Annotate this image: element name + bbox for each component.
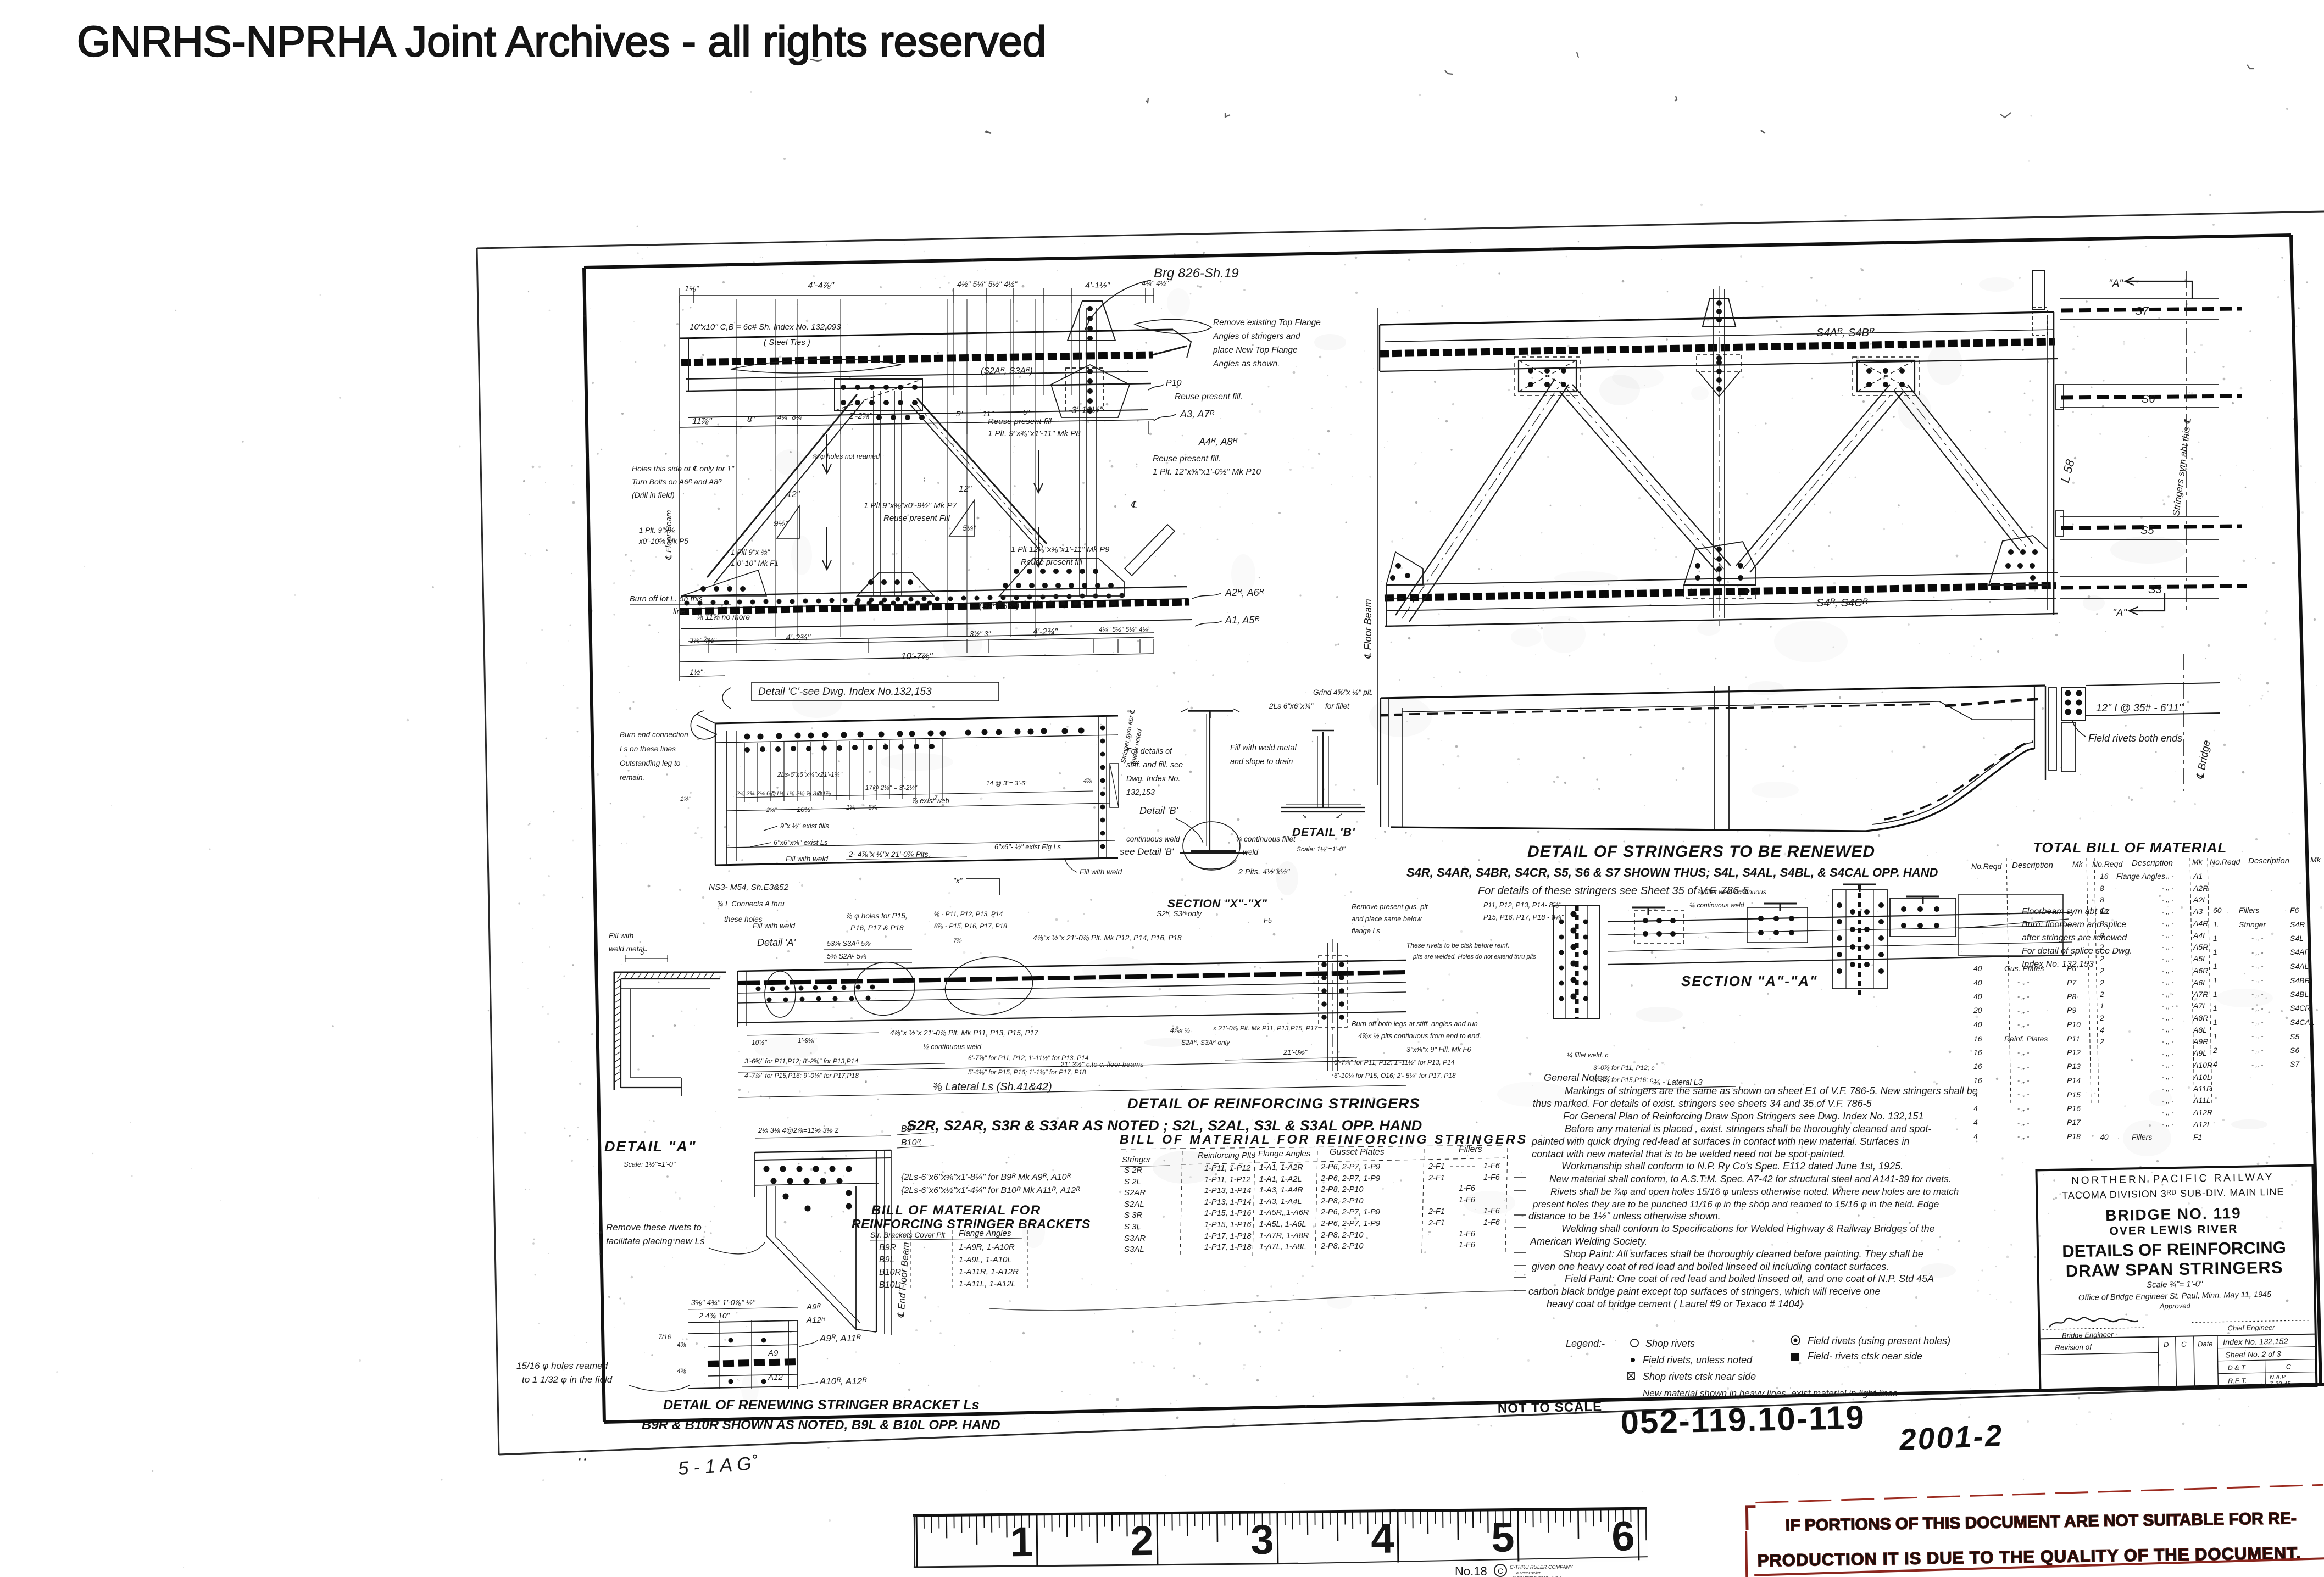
svg-text:- ,, -: - ,, - <box>2162 920 2173 927</box>
svg-text:20: 20 <box>1973 1006 1982 1015</box>
svg-text:3"x⅜"x 9" Fill. Mk F6: 3"x⅜"x 9" Fill. Mk F6 <box>1406 1045 1471 1054</box>
svg-text:- ,, -: - ,, - <box>2017 1021 2029 1028</box>
svg-text:P11: P11 <box>2067 1034 2080 1043</box>
svg-text:6"x6"- ½" exist Flg Ls: 6"x6"- ½" exist Flg Ls <box>994 843 1061 851</box>
svg-text:7-20-45: 7-20-45 <box>2270 1380 2291 1387</box>
svg-text:4: 4 <box>1973 1104 1978 1113</box>
svg-text:A9: A9 <box>768 1348 779 1358</box>
svg-text:40: 40 <box>2100 1133 2109 1141</box>
svg-text:1-P15, 1-P16: 1-P15, 1-P16 <box>1204 1209 1252 1218</box>
svg-text:6: 6 <box>1611 1513 1635 1559</box>
svg-text:15/16 φ holes reamed: 15/16 φ holes reamed <box>516 1361 608 1371</box>
svg-text:Before any material is placed: Before any material is placed , exist. s… <box>1565 1123 1931 1134</box>
svg-text:- ,, -: - ,, - <box>2162 1085 2173 1093</box>
svg-text:- ,, -: - ,, - <box>2251 990 2263 998</box>
svg-text:S3AL: S3AL <box>1124 1245 1144 1254</box>
svg-text:B9R & B10R SHOWN AS NOTED, B9: B9R & B10R SHOWN AS NOTED, B9L & B10L OP… <box>642 1418 1000 1433</box>
svg-text:Mk: Mk <box>2072 860 2083 868</box>
svg-text:B9L: B9L <box>879 1255 894 1264</box>
svg-text:P13: P13 <box>2067 1062 2081 1071</box>
svg-text:- ,, -: - ,, - <box>2251 962 2263 970</box>
svg-text:( Steel Ties ): ( Steel Ties ) <box>764 338 810 347</box>
svg-text:3⅛" 4¾" 1'-0⅞" ½": 3⅛" 4¾" 1'-0⅞" ½" <box>691 1298 756 1307</box>
svg-text:1 Plt. 12"x⅜"x1'-0½" Mk P10: 1 Plt. 12"x⅜"x1'-0½" Mk P10 <box>1153 467 1261 477</box>
svg-text:Field Paint: One coat of red: Field Paint: One coat of red lead and bo… <box>1565 1273 1934 1284</box>
svg-text:2: 2 <box>2099 978 2104 987</box>
svg-text:C-THRU RULER COMPANY: C-THRU RULER COMPANY <box>1510 1564 1574 1570</box>
svg-text:1: 1 <box>2213 962 2217 971</box>
svg-text:1-A1, 1-A2L: 1-A1, 1-A2L <box>1259 1175 1302 1184</box>
svg-text:- ,, -: - ,, - <box>2251 1046 2263 1054</box>
svg-text:and slope to drain: and slope to drain <box>1230 757 1293 766</box>
svg-text:P16: P16 <box>2067 1104 2081 1113</box>
svg-text:16: 16 <box>1973 1062 1982 1071</box>
svg-text:A6R: A6R <box>2193 966 2208 975</box>
svg-text:A10R: A10R <box>2193 1061 2212 1069</box>
svg-text:Fill with: Fill with <box>609 932 633 940</box>
svg-text:↙: ↙ <box>1335 811 1342 821</box>
svg-text:Burn off lot L. on this: Burn off lot L. on this <box>630 595 703 604</box>
svg-text:1-P15, 1-P16: 1-P15, 1-P16 <box>1204 1221 1252 1229</box>
svg-text:F1: F1 <box>2193 1133 2202 1141</box>
svg-text:NOT TO SCALE: NOT TO SCALE <box>1498 1400 1603 1416</box>
svg-text:"A": "A" <box>2109 278 2123 289</box>
svg-text:1-A3, 1-A4L: 1-A3, 1-A4L <box>1259 1197 1302 1206</box>
svg-text:1-P17, 1-P18: 1-P17, 1-P18 <box>1204 1232 1251 1241</box>
svg-text:2-P6, 2-P7, 1-P9: 2-P6, 2-P7, 1-P9 <box>1320 1174 1380 1183</box>
svg-text:A12: A12 <box>768 1373 783 1382</box>
svg-text:Flange Angles: Flange Angles <box>1258 1149 1311 1158</box>
svg-text:5: 5 <box>1491 1514 1515 1561</box>
svg-text:Gus. Plates: Gus. Plates <box>2004 964 2044 973</box>
svg-text:- ,, -: - ,, - <box>2251 1005 2263 1012</box>
svg-text:painted with quick drying re: painted with quick drying red-lead at su… <box>1531 1136 1909 1147</box>
svg-text:⅞"φ holes not reamed: ⅞"φ holes not reamed <box>812 453 880 460</box>
svg-text:A8L: A8L <box>2193 1026 2207 1034</box>
svg-text:40: 40 <box>1973 1020 1982 1029</box>
svg-text:1 Plt 12⅛"x⅜"x1'-11" Mk P9: 1 Plt 12⅛"x⅜"x1'-11" Mk P9 <box>1011 545 1109 554</box>
svg-text:P18: P18 <box>2067 1132 2081 1141</box>
svg-text:- ,, -: - ,, - <box>2017 1090 2029 1098</box>
svg-text:Gusset Plates: Gusset Plates <box>1330 1147 1385 1157</box>
svg-text:B9R: B9R <box>879 1243 897 1252</box>
svg-text:Turn Bolts on A6ᴿ and A8ᴿ: Turn Bolts on A6ᴿ and A8ᴿ <box>632 477 722 486</box>
svg-text:Shop rivets ctsk near side: Shop rivets ctsk near side <box>1643 1371 1756 1382</box>
svg-text:2-F1: 2-F1 <box>1428 1219 1445 1228</box>
svg-text:see Detail 'B': see Detail 'B' <box>1120 846 1174 857</box>
svg-text:- ,, -: - ,, - <box>2162 1097 2173 1105</box>
svg-text:Stringer: Stringer <box>1122 1155 1152 1164</box>
svg-text:2-P6, 2-P7, 1-P9: 2-P6, 2-P7, 1-P9 <box>1320 1208 1380 1217</box>
svg-text:- ,, -: - ,, - <box>2162 884 2173 891</box>
svg-text:thus marked. For details of ex: thus marked. For details of exist. strin… <box>1533 1098 1872 1109</box>
svg-text:1-A1, 1-A2R: 1-A1, 1-A2R <box>1259 1163 1303 1172</box>
svg-text:DRAW SPAN STRINGERS: DRAW SPAN STRINGERS <box>2066 1258 2283 1281</box>
svg-text:- ,, -: - ,, - <box>2162 1014 2173 1022</box>
svg-text:A2R: A2R <box>2193 884 2208 893</box>
svg-text:S6: S6 <box>2290 1046 2299 1055</box>
svg-text:Welding shall conform to Spec: Welding shall conform to Specifications … <box>1561 1223 1935 1234</box>
svg-text:(S2Aᴿ, S3Aᴿ): (S2Aᴿ, S3Aᴿ) <box>981 366 1033 376</box>
svg-text:A12ᴿ: A12ᴿ <box>806 1316 826 1325</box>
svg-text:- ,, -: - ,, - <box>2017 1105 2029 1112</box>
svg-text:D: D <box>2164 1340 2169 1348</box>
svg-text:Markings of stringers are the: Markings of stringers are the same as sh… <box>1565 1085 1978 1096</box>
svg-text:SECTION "X"-"X": SECTION "X"-"X" <box>1167 898 1267 910</box>
svg-text:A3: A3 <box>2193 907 2203 916</box>
svg-text:DETAIL OF RENEWING STRINGER: DETAIL OF RENEWING STRINGER BRACKET Ls <box>663 1397 980 1413</box>
svg-text:12" I @ 35# - 6'11": 12" I @ 35# - 6'11" <box>2096 703 2183 714</box>
svg-text:℄ Floor Beam: ℄ Floor Beam <box>664 510 674 560</box>
svg-text:continuous weld: continuous weld <box>1126 835 1180 843</box>
svg-text:No.Reqd: No.Reqd <box>2210 857 2240 866</box>
svg-text:- ,, -: - ,, - <box>2162 990 2173 998</box>
svg-text:2-F1: 2-F1 <box>1428 1207 1445 1216</box>
svg-text:Burn: floorbeam and splice: Burn: floorbeam and splice <box>2022 920 2126 929</box>
svg-text:S4CAL: S4CAL <box>2290 1018 2314 1027</box>
svg-text:D & T: D & T <box>2228 1364 2247 1372</box>
svg-text:¼ continuous fillet: ¼ continuous fillet <box>1236 835 1296 843</box>
svg-text:No.Reqd: No.Reqd <box>2092 860 2123 868</box>
svg-text:4'-4⅞": 4'-4⅞" <box>808 280 835 291</box>
svg-text:Revision of: Revision of <box>2055 1343 2092 1352</box>
svg-text:Stringer: Stringer <box>2239 920 2266 929</box>
svg-text:1-A9L, 1-A10L: 1-A9L, 1-A10L <box>959 1255 1012 1264</box>
svg-text:B10ᴿ: B10ᴿ <box>901 1138 921 1147</box>
svg-text:1: 1 <box>2100 1001 2104 1010</box>
svg-text:17@ 2⅛" = 3'-2¼": 17@ 2⅛" = 3'-2¼" <box>865 784 918 792</box>
svg-text:Scale: 1½"=1'-0": Scale: 1½"=1'-0" <box>624 1160 676 1168</box>
svg-text:for fillet: for fillet <box>1325 702 1350 710</box>
svg-text:16: 16 <box>2100 872 2109 881</box>
svg-text:A9ᴿ, A11ᴿ: A9ᴿ, A11ᴿ <box>819 1333 861 1344</box>
svg-text:1: 1 <box>1010 1519 1033 1565</box>
svg-text:1⅜: 1⅜ <box>846 804 855 811</box>
svg-text:Outstanding leg to: Outstanding leg to <box>620 759 681 767</box>
svg-text:- ,, -: - ,, - <box>2162 1120 2173 1128</box>
svg-text:- ,, -: - ,, - <box>2162 967 2173 974</box>
svg-text:A9ᴿ: A9ᴿ <box>806 1302 821 1312</box>
svg-text:¾ L Connects A thru: ¾ L Connects A thru <box>717 900 785 908</box>
svg-text:DETAIL OF REINFORCING STRINGER: DETAIL OF REINFORCING STRINGERS <box>1127 1095 1420 1112</box>
svg-text:2: 2 <box>2212 1046 2217 1055</box>
svg-text:3½" 3": 3½" 3" <box>970 629 992 638</box>
svg-text:- ,, -: - ,, - <box>2162 1073 2173 1080</box>
svg-text:1 Plt. 9"x⅜: 1 Plt. 9"x⅜ <box>639 526 675 534</box>
svg-text:2-P8, 2-P10: 2-P8, 2-P10 <box>1320 1185 1363 1194</box>
svg-text:8: 8 <box>2100 884 2104 893</box>
svg-text:contact with new material that: contact with new material that is to be … <box>1532 1149 1845 1160</box>
svg-text:5⅜ S2Aᴸ 5⅝: 5⅜ S2Aᴸ 5⅝ <box>827 952 866 960</box>
svg-text:TOTAL BILL OF MATERIAL: TOTAL BILL OF MATERIAL <box>2033 839 2227 856</box>
svg-text:S4ᴿ, S4Cᴿ: S4ᴿ, S4Cᴿ <box>1816 597 1868 609</box>
svg-text:- ,, -: - ,, - <box>2251 1061 2263 1068</box>
svg-text:Str. Brackets Cover Plt: Str. Brackets Cover Plt <box>870 1231 946 1239</box>
svg-text:12": 12" <box>959 484 972 494</box>
svg-text:A11L: A11L <box>2193 1096 2211 1105</box>
svg-text:1-F6: 1-F6 <box>1483 1207 1500 1216</box>
svg-text:53⅞ S3Aᴿ 5⅞: 53⅞ S3Aᴿ 5⅞ <box>827 939 871 948</box>
svg-text:16: 16 <box>1973 1076 1982 1085</box>
svg-text:⅞ exist web: ⅞ exist web <box>912 796 949 805</box>
svg-text:Description: Description <box>2132 859 2173 868</box>
svg-text:BILL OF MATERIAL FOR: BILL OF MATERIAL FOR <box>871 1203 1041 1218</box>
svg-text:1½": 1½" <box>690 667 703 676</box>
svg-text:40: 40 <box>1973 978 1982 987</box>
svg-text:A8R: A8R <box>2193 1013 2208 1022</box>
svg-text:Reinforcing Plts: Reinforcing Plts <box>1198 1151 1256 1160</box>
svg-text:F6: F6 <box>2290 906 2299 915</box>
svg-text:DETAIL OF STRINGERS TO BE RENE: DETAIL OF STRINGERS TO BE RENEWED <box>1527 843 1875 861</box>
svg-text:3: 3 <box>1250 1517 1274 1563</box>
svg-text:SECTION "A"-"A": SECTION "A"-"A" <box>1681 973 1817 989</box>
svg-text:- ,, -: - ,, - <box>2162 955 2173 963</box>
svg-text:For details of: For details of <box>1126 747 1173 756</box>
svg-text:DETAILS OF REINFORCING: DETAILS OF REINFORCING <box>2062 1238 2286 1261</box>
svg-text:1-A5R, 1-A6R: 1-A5R, 1-A6R <box>1259 1208 1309 1217</box>
svg-text:1⅛": 1⅛" <box>680 796 692 803</box>
svg-text:S5: S5 <box>2140 525 2154 537</box>
svg-text:40: 40 <box>1973 964 1982 973</box>
svg-text:1-F6: 1-F6 <box>1483 1218 1500 1227</box>
svg-text:11⅞": 11⅞" <box>692 417 713 426</box>
svg-text:P6: P6 <box>2067 964 2076 973</box>
svg-text:5⅞: 5⅞ <box>868 804 877 811</box>
svg-text:- ,, -: - ,, - <box>2162 1108 2173 1116</box>
svg-text:4: 4 <box>2213 1060 2217 1068</box>
svg-text:Angles as shown.: Angles as shown. <box>1213 359 1280 369</box>
svg-text:{2Ls-6"x6"x½"x1'-4¼" for B10ᴿ: {2Ls-6"x6"x½"x1'-4¼" for B10ᴿ Mk A11ᴿ, A… <box>901 1186 1080 1195</box>
svg-text:5¼": 5¼" <box>963 523 976 532</box>
svg-text:line: line <box>673 608 686 616</box>
svg-text:- ,, -: - ,, - <box>2251 949 2263 956</box>
svg-text:21'-0⅝": 21'-0⅝" <box>1283 1048 1308 1056</box>
svg-text:A12R: A12R <box>2193 1108 2212 1117</box>
svg-text:P15, P16, P17, P18 - 8⅝": P15, P16, P17, P18 - 8⅝" <box>1483 913 1565 921</box>
svg-text:- ,, -: - ,, - <box>2162 978 2173 986</box>
svg-text:2-P8, 2-P10: 2-P8, 2-P10 <box>1320 1231 1363 1240</box>
svg-text:Scale: 1½"=1'-0": Scale: 1½"=1'-0" <box>1297 845 1346 853</box>
svg-text:A4L: A4L <box>2193 931 2207 940</box>
svg-text:1-P13, 1-P14: 1-P13, 1-P14 <box>1204 1198 1251 1207</box>
svg-text:4: 4 <box>2100 1026 2104 1034</box>
svg-text:- ,, -: - ,, - <box>2162 931 2173 939</box>
svg-text:Brg 826-Sh.19: Brg 826-Sh.19 <box>1154 266 1239 281</box>
svg-text:P12: P12 <box>2067 1048 2081 1057</box>
svg-text:GNRHS-NPRHA Joint Archives - a: GNRHS-NPRHA Joint Archives - all rights … <box>77 17 1046 65</box>
svg-text:No.Reqd: No.Reqd <box>1971 862 2002 871</box>
svg-text:132,153: 132,153 <box>1126 788 1155 797</box>
svg-text:1: 1 <box>2213 920 2217 929</box>
svg-text:S5: S5 <box>2290 1032 2299 1041</box>
svg-text:14 @ 3"= 3'-6": 14 @ 3"= 3'-6" <box>986 780 1028 787</box>
svg-text:Chief Engineer: Chief Engineer <box>2227 1323 2275 1333</box>
svg-text:5": 5" <box>956 410 963 418</box>
svg-text:1-F6: 1-F6 <box>1459 1241 1476 1250</box>
svg-text:10"x10" C,B = 6c# Sh. Index No: 10"x10" C,B = 6c# Sh. Index No. 132,093 <box>690 322 841 332</box>
svg-text:- ,, -: - ,, - <box>2162 896 2173 904</box>
svg-text:Flange Angles: Flange Angles <box>2116 872 2165 881</box>
svg-text:B10L: B10L <box>879 1280 899 1290</box>
svg-text:S4R: S4R <box>2290 920 2305 929</box>
svg-text:S2Aᴿ, S3Aᴿ only: S2Aᴿ, S3Aᴿ only <box>1181 1039 1230 1046</box>
svg-text:A2L: A2L <box>2193 895 2207 904</box>
svg-text:1-A5L, 1-A6L: 1-A5L, 1-A6L <box>1259 1220 1306 1229</box>
svg-text:6"x6"x⅝" exist Ls: 6"x6"x⅝" exist Ls <box>774 838 828 846</box>
svg-text:heavy coat of bridge cement (: heavy coat of bridge cement ( Laurel #9 … <box>1547 1299 1803 1309</box>
svg-text:S 2R: S 2R <box>1124 1166 1143 1175</box>
svg-text:Fill with weld: Fill with weld <box>1080 868 1122 876</box>
svg-text:4⅞x ½: 4⅞x ½ <box>1170 1027 1190 1034</box>
svg-text:Remove existing Top Flange: Remove existing Top Flange <box>1213 318 1321 327</box>
svg-text:4⅞: 4⅞ <box>1083 778 1092 784</box>
svg-text:- ,, -: - ,, - <box>2017 1119 2029 1127</box>
svg-text:C: C <box>2286 1363 2292 1370</box>
svg-text:Detail 'A': Detail 'A' <box>757 937 796 948</box>
svg-text:American Welding Society.: American Welding Society. <box>1530 1236 1647 1247</box>
svg-text:1 Fill 9"x ⅜": 1 Fill 9"x ⅜" <box>731 548 770 556</box>
svg-text:4¼" 5½" 5¼" 4¼": 4¼" 5½" 5¼" 4¼" <box>1099 626 1151 633</box>
svg-text:16: 16 <box>1973 1034 1982 1043</box>
svg-text:S2AR: S2AR <box>1124 1188 1146 1197</box>
svg-text:½ continuous weld: ½ continuous weld <box>923 1043 982 1051</box>
svg-text:P15: P15 <box>2067 1090 2081 1099</box>
svg-text:weld metal: weld metal <box>609 945 645 953</box>
svg-text:2: 2 <box>2099 954 2104 963</box>
svg-text:4'-2¾": 4'-2¾" <box>1033 627 1059 637</box>
svg-text:to 1 1/32 φ in the field: to 1 1/32 φ in the field <box>522 1374 613 1385</box>
svg-text:4'-7⅞" for P15,P16; 9'-0⅛" for: 4'-7⅞" for P15,P16; 9'-0⅛" for P17,P18 <box>744 1072 859 1079</box>
svg-text:"x": "x" <box>953 877 963 885</box>
svg-text:1 Plt 9"x⅜"x0'-9½" Mk P7: 1 Plt 9"x⅜"x0'-9½" Mk P7 <box>864 501 957 510</box>
svg-text:A11R: A11R <box>2193 1084 2212 1093</box>
svg-text:2-P8, 2-P10: 2-P8, 2-P10 <box>1320 1197 1363 1206</box>
svg-text:1-F6: 1-F6 <box>1459 1196 1476 1205</box>
svg-text:4⅜: 4⅜ <box>677 1341 686 1348</box>
svg-text:No.18: No.18 <box>1455 1564 1487 1577</box>
svg-text:2-F1: 2-F1 <box>1428 1174 1445 1183</box>
svg-text:8⅞ - P15, P16, P17, P18: 8⅞ - P15, P16, P17, P18 <box>934 922 1007 930</box>
svg-text:40: 40 <box>1973 992 1982 1001</box>
svg-text:- ,, -: - ,, - <box>2162 908 2173 916</box>
svg-text:A7R: A7R <box>2193 990 2208 999</box>
svg-text:C: C <box>1498 1567 1503 1575</box>
svg-text:··: ·· <box>577 1450 588 1468</box>
svg-text:S2AL: S2AL <box>1124 1200 1144 1209</box>
svg-text:R.E.T.: R.E.T. <box>2228 1377 2247 1385</box>
svg-text:A12L: A12L <box>2193 1120 2211 1129</box>
svg-text:2-F1: 2-F1 <box>1428 1162 1445 1171</box>
svg-text:B9ᴿ: B9ᴿ <box>901 1124 916 1134</box>
svg-text:present holes they are to be p: present holes they are to be punched 11/… <box>1532 1199 1939 1210</box>
svg-text:C: C <box>2181 1340 2187 1348</box>
svg-text:4⅞"x ½"x 21'-0⅞ Plt. Mk P12, P: 4⅞"x ½"x 21'-0⅞ Plt. Mk P12, P14, P16, P… <box>1033 934 1182 942</box>
svg-text:and place same below: and place same below <box>1352 915 1422 923</box>
svg-text:NS3- M54, Sh.E3&52: NS3- M54, Sh.E3&52 <box>709 883 789 892</box>
svg-text:Flange Angles: Flange Angles <box>959 1229 1011 1238</box>
svg-text:Remove these rivets to: Remove these rivets to <box>606 1222 702 1233</box>
svg-text:- ,, -: - ,, - <box>2162 943 2173 951</box>
svg-text:Mk: Mk <box>2310 855 2321 864</box>
svg-text:4⅞x ½ plts continuous from en: 4⅞x ½ plts continuous from end to end. <box>1358 1032 1481 1040</box>
svg-text:S 3R: S 3R <box>1124 1211 1143 1220</box>
svg-text:3'-10½": 3'-10½" <box>1071 405 1103 415</box>
svg-text:8: 8 <box>2100 919 2104 928</box>
svg-text:Index No. 132,152: Index No. 132,152 <box>2223 1337 2288 1347</box>
svg-text:Detail 'B': Detail 'B' <box>1139 805 1178 816</box>
svg-text:4'-2¾": 4'-2¾" <box>786 633 811 643</box>
svg-text:⅜ - P11, P12, P13, P14: ⅜ - P11, P12, P13, P14 <box>934 910 1003 918</box>
svg-text:P9: P9 <box>2067 1006 2076 1015</box>
svg-text:21'-3½" c.to c. floor beams: 21'-3½" c.to c. floor beams <box>1060 1060 1144 1068</box>
svg-text:3'-0⅞ for P11, P12; c: 3'-0⅞ for P11, P12; c <box>1593 1064 1654 1072</box>
svg-text:3⅜" 4½": 3⅜" 4½" <box>690 636 717 644</box>
svg-text:Shop Paint: All surfaces shall: Shop Paint: All surfaces shall be thorou… <box>1563 1249 1923 1260</box>
svg-text:1: 1 <box>2213 1004 2217 1012</box>
svg-text:Fill with weld: Fill with weld <box>753 922 795 930</box>
svg-text:- ,, -: - ,, - <box>2162 1050 2173 1057</box>
svg-text:2: 2 <box>2099 1013 2104 1022</box>
svg-text:4: 4 <box>1371 1515 1394 1562</box>
svg-text:Reuse present Fill: Reuse present Fill <box>883 514 950 523</box>
svg-text:A5R: A5R <box>2193 943 2208 951</box>
svg-text:1 0'-10" Mk F1: 1 0'-10" Mk F1 <box>731 559 779 567</box>
svg-text:S 2L: S 2L <box>1124 1177 1141 1186</box>
svg-text:B10R: B10R <box>879 1268 901 1277</box>
svg-text:Rivets shall be ⅞φ and open ho: Rivets shall be ⅞φ and open holes 15/16 … <box>1550 1186 1959 1197</box>
svg-text:2Ls-6"x6"x¾"x21'-1¼": 2Ls-6"x6"x¾"x21'-1¼" <box>777 771 843 778</box>
svg-text:P10: P10 <box>1166 378 1182 388</box>
svg-text:New material shown in heavy li: New material shown in heavy lines, exist… <box>1643 1388 1898 1398</box>
svg-text:1-F6: 1-F6 <box>1459 1184 1476 1193</box>
svg-text:60: 60 <box>2213 906 2222 915</box>
svg-text:weld: weld <box>1243 848 1258 856</box>
svg-text:A1, A5ᴿ: A1, A5ᴿ <box>1225 615 1259 626</box>
svg-text:plts are welded. Holes do not: plts are welded. Holes do not extend thr… <box>1413 954 1536 960</box>
svg-text:Field rivets (using present ho: Field rivets (using present holes) <box>1808 1335 1950 1346</box>
svg-text:"A": "A" <box>2112 608 2127 619</box>
svg-text:- ,, -: - ,, - <box>2162 872 2173 880</box>
svg-text:6'-7⅞" for P11, P12; 1'-11½" f: 6'-7⅞" for P11, P12; 1'-11½" for P13, P1… <box>1334 1058 1455 1066</box>
svg-text:2: 2 <box>2099 990 2104 999</box>
svg-text:after stringers are renewed: after stringers are renewed <box>2022 933 2127 943</box>
svg-text:A2ᴿ, A6ᴿ: A2ᴿ, A6ᴿ <box>1225 587 1264 598</box>
svg-text:- ,, -: - ,, - <box>2017 1049 2029 1056</box>
svg-text:- ,, -: - ,, - <box>2162 1002 2173 1010</box>
svg-text:S 3L: S 3L <box>1124 1222 1141 1231</box>
svg-text:1: 1 <box>2213 976 2217 985</box>
svg-text:2 4¾ 10": 2 4¾ 10" <box>698 1311 730 1320</box>
svg-text:1: 1 <box>2213 1032 2217 1041</box>
svg-text:- ,, -: - ,, - <box>2017 1063 2029 1071</box>
svg-text:x0'-10⅝ Mk P5: x0'-10⅝ Mk P5 <box>638 537 688 545</box>
svg-text:8": 8" <box>747 415 755 424</box>
svg-text:S4L: S4L <box>2290 934 2304 943</box>
svg-text:2: 2 <box>1130 1518 1154 1564</box>
svg-text:Burn end connection: Burn end connection <box>620 731 688 739</box>
svg-text:Shop rivets: Shop rivets <box>1645 1338 1695 1349</box>
svg-text:- ,, -: - ,, - <box>2162 1038 2173 1045</box>
svg-text:10½": 10½" <box>797 805 814 813</box>
svg-text:Workmanship shall conform to N: Workmanship shall conform to N.P. Ry Co'… <box>1561 1161 1903 1172</box>
svg-text:Detail 'C'-see Dwg. Index No.1: Detail 'C'-see Dwg. Index No.132,153 <box>758 686 932 698</box>
svg-text:N.A.P: N.A.P <box>2270 1374 2286 1381</box>
svg-text:Scale ¾"= 1'-0": Scale ¾"= 1'-0" <box>2147 1279 2203 1290</box>
svg-text:7⅞: 7⅞ <box>953 938 962 944</box>
svg-text:Description: Description <box>2012 861 2053 870</box>
svg-text:4'-1½": 4'-1½" <box>1085 281 1111 291</box>
svg-text:Reuse present fill.: Reuse present fill. <box>1153 454 1221 464</box>
